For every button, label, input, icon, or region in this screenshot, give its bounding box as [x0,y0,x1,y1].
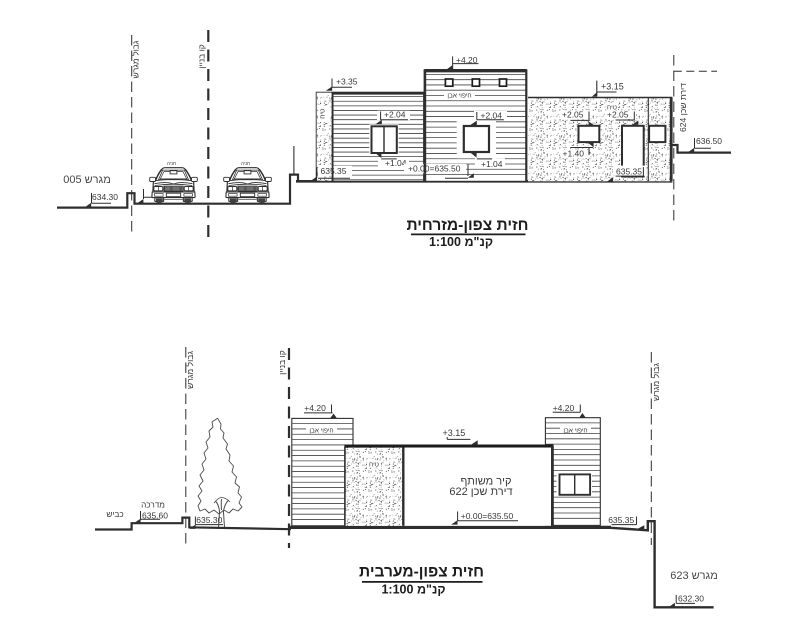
svg-text:+1.04: +1.04 [481,159,503,169]
svg-text:635.35: 635.35 [321,166,347,176]
svg-text:+3.15: +3.15 [601,82,624,92]
svg-text:גבול מגרש: גבול מגרש [131,40,141,78]
svg-text:חיפוי אבן: חיפוי אבן [309,428,333,435]
svg-text:+4.20: +4.20 [304,403,326,413]
svg-text:+3.15: +3.15 [443,428,466,438]
svg-text:+2.05: +2.05 [607,110,629,120]
svg-text:דירת שכן 624: דירת שכן 624 [678,83,688,132]
svg-text:גבול מגרש: גבול מגרש [185,351,195,389]
svg-text:מגרש 005: מגרש 005 [63,174,111,186]
svg-text:חיפוי אבן: חיפוי אבן [447,93,471,100]
svg-text:קנ"מ 1:100: קנ"מ 1:100 [429,235,493,249]
svg-text:635.35: 635.35 [608,515,634,525]
svg-text:גבול מגרש: גבול מגרש [651,363,661,401]
svg-text:+2.05: +2.05 [562,110,584,120]
svg-text:קנ"מ 1:100: קנ"מ 1:100 [381,583,445,597]
svg-text:חזית צפון-מזרחית: חזית צפון-מזרחית [406,217,528,234]
svg-text:חניה: חניה [167,162,176,167]
svg-text:קו בניין: קו בניין [277,350,287,375]
svg-text:+0.00=635.50: +0.00=635.50 [408,163,461,173]
svg-text:+2.04: +2.04 [384,110,406,120]
svg-text:+4.20: +4.20 [553,403,575,413]
svg-text:מגרש 623: מגרש 623 [670,570,718,582]
svg-text:דירת שכן 622: דירת שכן 622 [449,486,512,498]
svg-text:טיח: טיח [369,462,379,469]
svg-text:636.50: 636.50 [696,136,722,146]
svg-text:+1.40: +1.40 [563,149,585,159]
svg-text:+2.04: +2.04 [481,110,503,120]
svg-text:632.30: 632.30 [678,594,704,604]
svg-text:קו בניין: קו בניין [196,44,206,69]
svg-text:634.30: 634.30 [92,192,118,202]
svg-text:חיפוי אבן: חיפוי אבן [563,427,587,434]
svg-text:+0.00=635.50: +0.00=635.50 [461,511,514,521]
svg-text:635.35: 635.35 [616,167,642,177]
svg-text:מדרכה: מדרכה [141,501,165,510]
svg-text:כביש: כביש [106,510,123,519]
svg-text:+3.35: +3.35 [336,77,358,87]
svg-text:חזית צפון-מערבית: חזית צפון-מערבית [359,564,484,581]
svg-text:טיח: טיח [320,109,327,119]
svg-text:+1.04: +1.04 [385,158,407,168]
svg-text:חניה: חניה [241,162,250,167]
